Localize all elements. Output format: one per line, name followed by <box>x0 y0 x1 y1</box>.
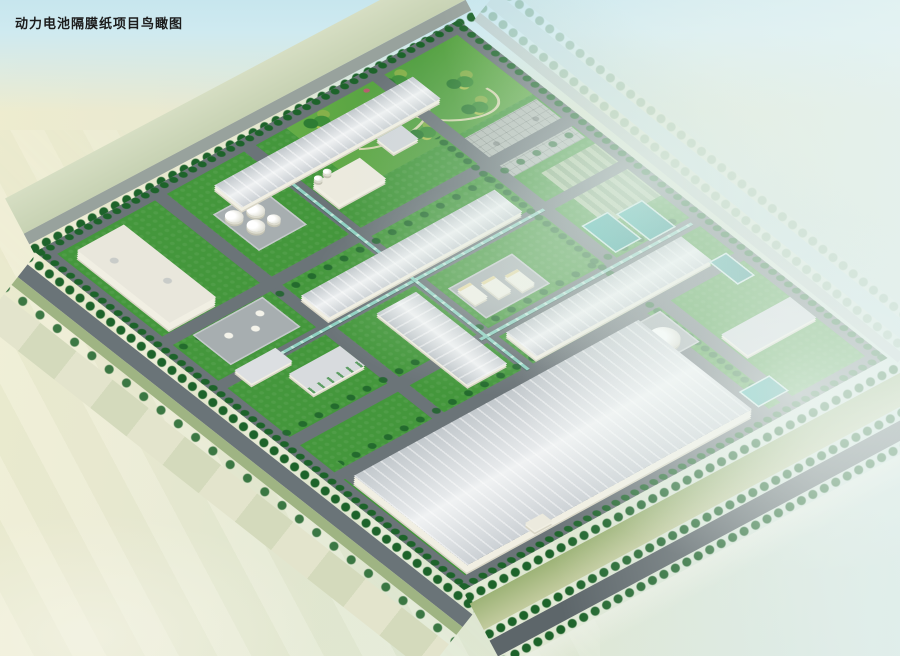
page-title: 动力电池隔膜纸项目鸟瞰图 <box>15 13 183 32</box>
aerial-render: 动力电池隔膜纸项目鸟瞰图 <box>0 0 900 656</box>
